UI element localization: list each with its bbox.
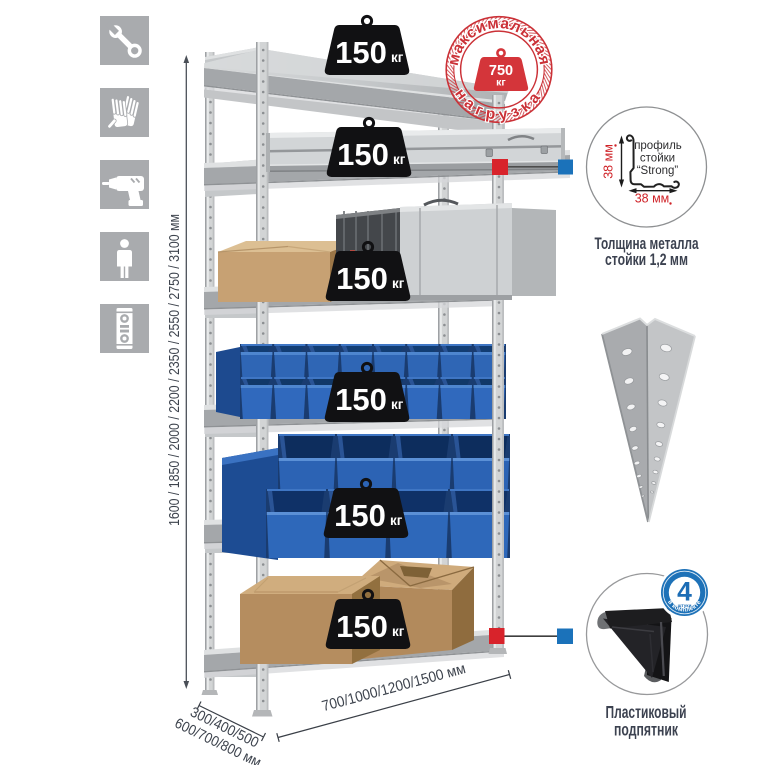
svg-text:кг: кг	[392, 276, 405, 291]
svg-text:150: 150	[335, 382, 387, 417]
svg-text:стойки 1,2 мм: стойки 1,2 мм	[605, 251, 688, 269]
svg-text:38 мм: 38 мм	[635, 192, 670, 206]
svg-text:150: 150	[335, 35, 387, 70]
svg-text:подпятник: подпятник	[614, 720, 678, 740]
svg-text:кг: кг	[393, 152, 406, 167]
svg-text:кг: кг	[391, 50, 404, 65]
svg-text:1600 / 1850 / 2000 / 2200 / 23: 1600 / 1850 / 2000 / 2200 / 2350 / 2550 …	[166, 214, 183, 526]
svg-text:“Strong”: “Strong”	[637, 165, 679, 177]
svg-text:кг: кг	[392, 624, 405, 639]
svg-text:кг: кг	[496, 77, 506, 89]
svg-text:кг: кг	[390, 513, 403, 528]
svg-text:38 мм: 38 мм	[602, 144, 616, 179]
svg-text:150: 150	[336, 261, 388, 296]
svg-text:стойки: стойки	[640, 153, 675, 165]
svg-text:кг: кг	[391, 397, 404, 412]
svg-text:150: 150	[337, 137, 389, 172]
svg-text:профиль: профиль	[634, 140, 682, 152]
svg-text:150: 150	[334, 498, 386, 533]
svg-text:150: 150	[336, 609, 388, 644]
